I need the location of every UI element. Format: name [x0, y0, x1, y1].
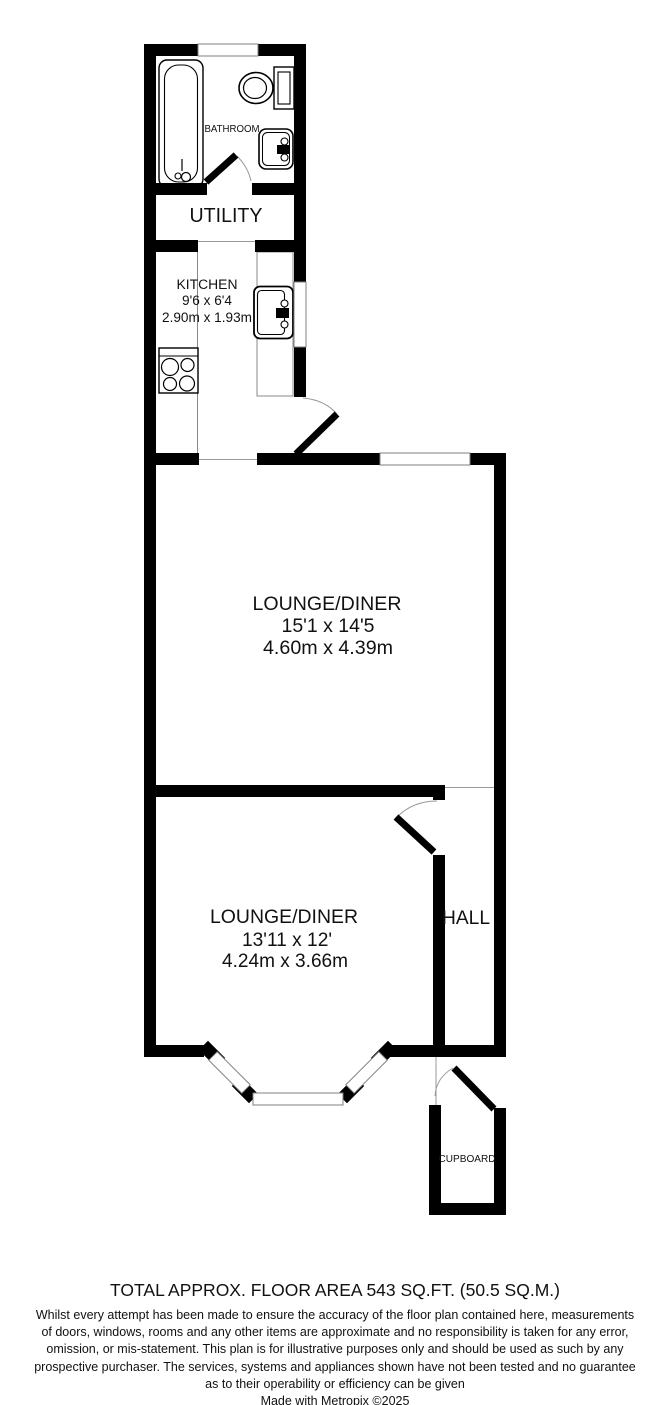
disclaimer-text: Whilst every attempt has been made to en…	[0, 1307, 670, 1393]
hob-fixture	[159, 348, 198, 393]
hall-label: HALL	[442, 908, 490, 929]
bay-window-left	[209, 1052, 250, 1093]
svg-text:4.24m x 3.66m: 4.24m x 3.66m	[222, 951, 348, 972]
footer: TOTAL APPROX. FLOOR AREA 543 SQ.FT. (50.…	[0, 1280, 670, 1405]
bathtub-fixture	[159, 60, 203, 187]
floor-plan: BATHROOM UTILITY KITCHEN 9'6 x 6'4 2.90m…	[0, 0, 670, 1405]
disclaimer-line: omission, or mis-statement. This plan is…	[0, 1341, 670, 1358]
bathroom-window	[198, 44, 258, 56]
disclaimer-line: prospective purchaser. The services, sys…	[0, 1359, 670, 1376]
bay-window-right	[346, 1052, 387, 1093]
bathroom-door-arc	[237, 156, 251, 181]
lounge-diner-1-label: LOUNGE/DINER 15'1 x 14'5 4.60m x 4.39m	[253, 594, 402, 659]
svg-text:9'6 x 6'4: 9'6 x 6'4	[182, 293, 232, 308]
total-area-text: TOTAL APPROX. FLOOR AREA 543 SQ.FT. (50.…	[0, 1280, 670, 1301]
kitchen-door	[296, 414, 337, 454]
lounge-door	[396, 817, 434, 852]
credit-text: Made with Metropix ©2025	[0, 1393, 670, 1405]
svg-text:4.60m x 4.39m: 4.60m x 4.39m	[263, 638, 393, 659]
kitchen-sink-fixture	[254, 287, 293, 339]
disclaimer-line: as to their operability or efficiency ca…	[0, 1376, 670, 1393]
bay-window-centre	[253, 1093, 343, 1105]
utility-label: UTILITY	[190, 204, 263, 227]
kitchen-door-arc	[303, 398, 337, 414]
svg-text:13'11 x 12': 13'11 x 12'	[242, 930, 332, 951]
front-door-arc	[435, 1068, 453, 1096]
disclaimer-line: Whilst every attempt has been made to en…	[0, 1307, 670, 1324]
svg-text:15'1 x 14'5: 15'1 x 14'5	[282, 616, 375, 637]
lounge-door-arc	[397, 801, 437, 817]
svg-text:LOUNGE/DINER: LOUNGE/DINER	[210, 907, 358, 928]
svg-text:LOUNGE/DINER: LOUNGE/DINER	[253, 594, 402, 615]
svg-text:2.90m x 1.93m: 2.90m x 1.93m	[162, 310, 252, 325]
cupboard-label: CUPBOARD	[439, 1153, 496, 1165]
toilet-fixture	[239, 67, 294, 109]
front-door	[454, 1068, 494, 1109]
room-openings	[198, 242, 494, 1106]
bathroom-label: BATHROOM	[205, 124, 260, 135]
svg-text:KITCHEN: KITCHEN	[177, 277, 238, 292]
basin-fixture	[259, 129, 293, 169]
lounge-window	[380, 453, 470, 465]
bathroom-door	[206, 155, 236, 182]
lounge-diner-2-label: LOUNGE/DINER 13'11 x 12' 4.24m x 3.66m	[210, 907, 358, 972]
floorplan-page: BATHROOM UTILITY KITCHEN 9'6 x 6'4 2.90m…	[0, 0, 670, 1405]
kitchen-window	[294, 282, 306, 347]
disclaimer-line: of doors, windows, rooms and any other i…	[0, 1324, 670, 1341]
